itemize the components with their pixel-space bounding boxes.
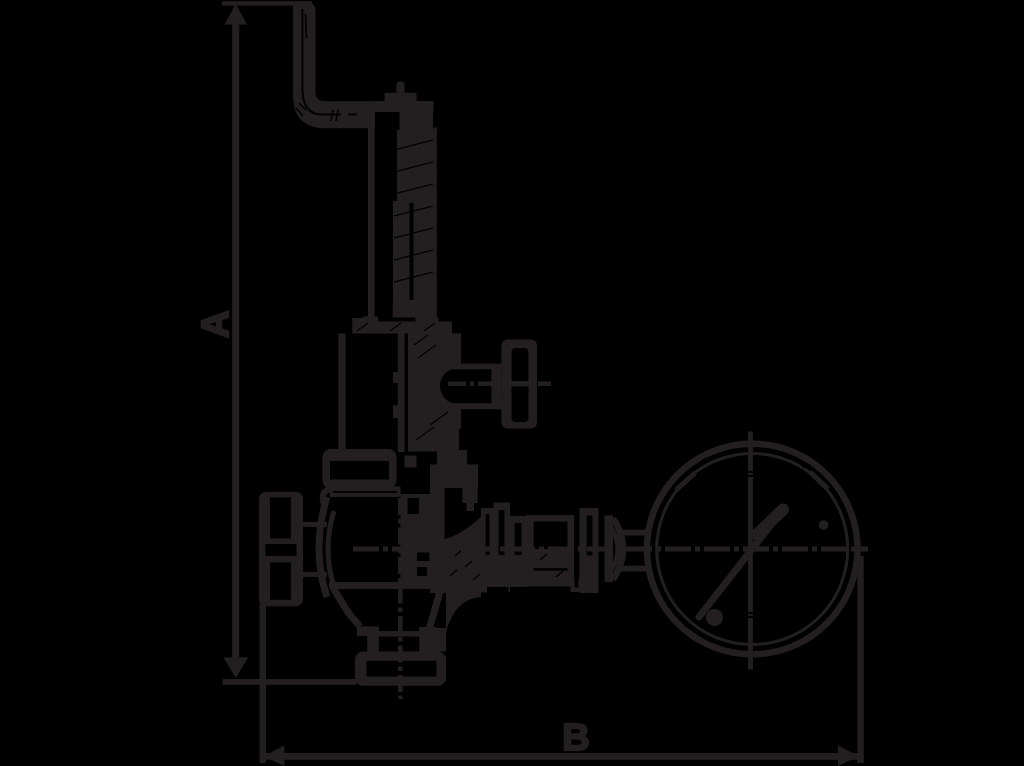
svg-text:A: A bbox=[195, 311, 237, 338]
svg-text:B: B bbox=[562, 717, 589, 759]
